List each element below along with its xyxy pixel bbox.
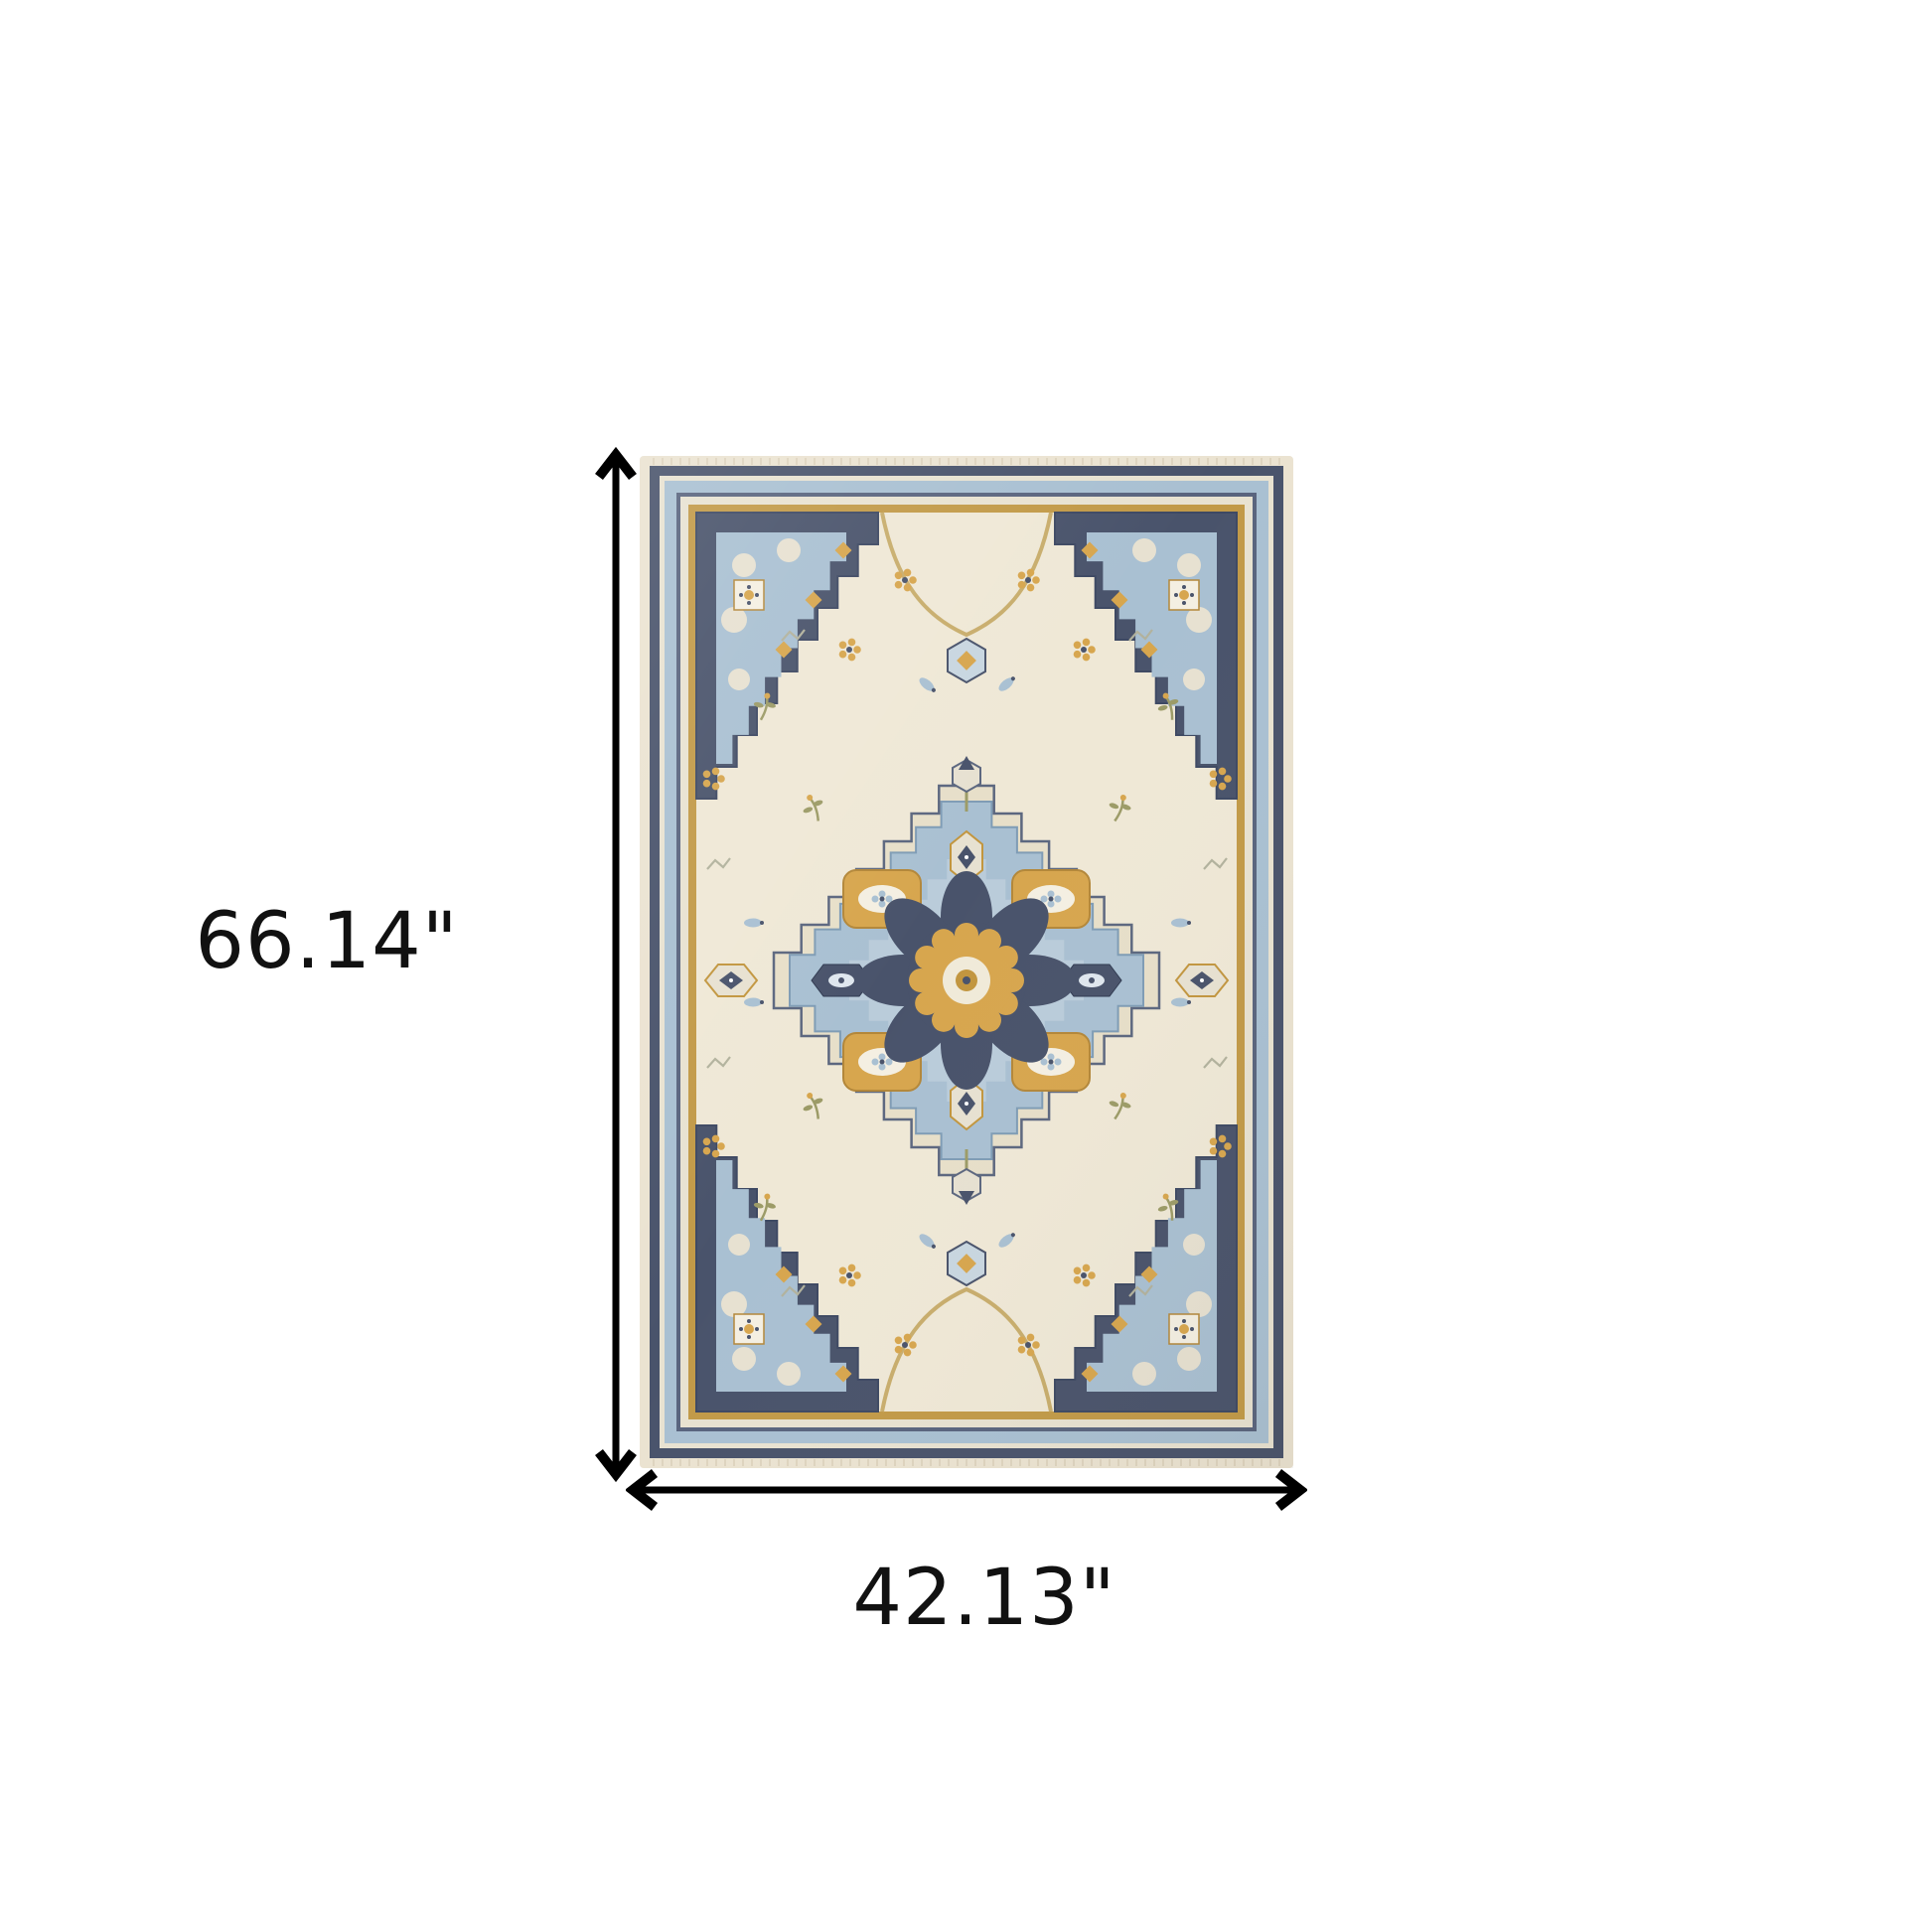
height-dimension-label: 66.14" — [158, 895, 496, 988]
rug-image — [640, 456, 1293, 1468]
product-dimension-diagram: 66.14" 42.13" — [0, 0, 1932, 1932]
height-dimension-arrow — [586, 442, 648, 1487]
width-dimension-label: 42.13" — [816, 1552, 1153, 1645]
width-dimension-arrow — [626, 1460, 1307, 1520]
